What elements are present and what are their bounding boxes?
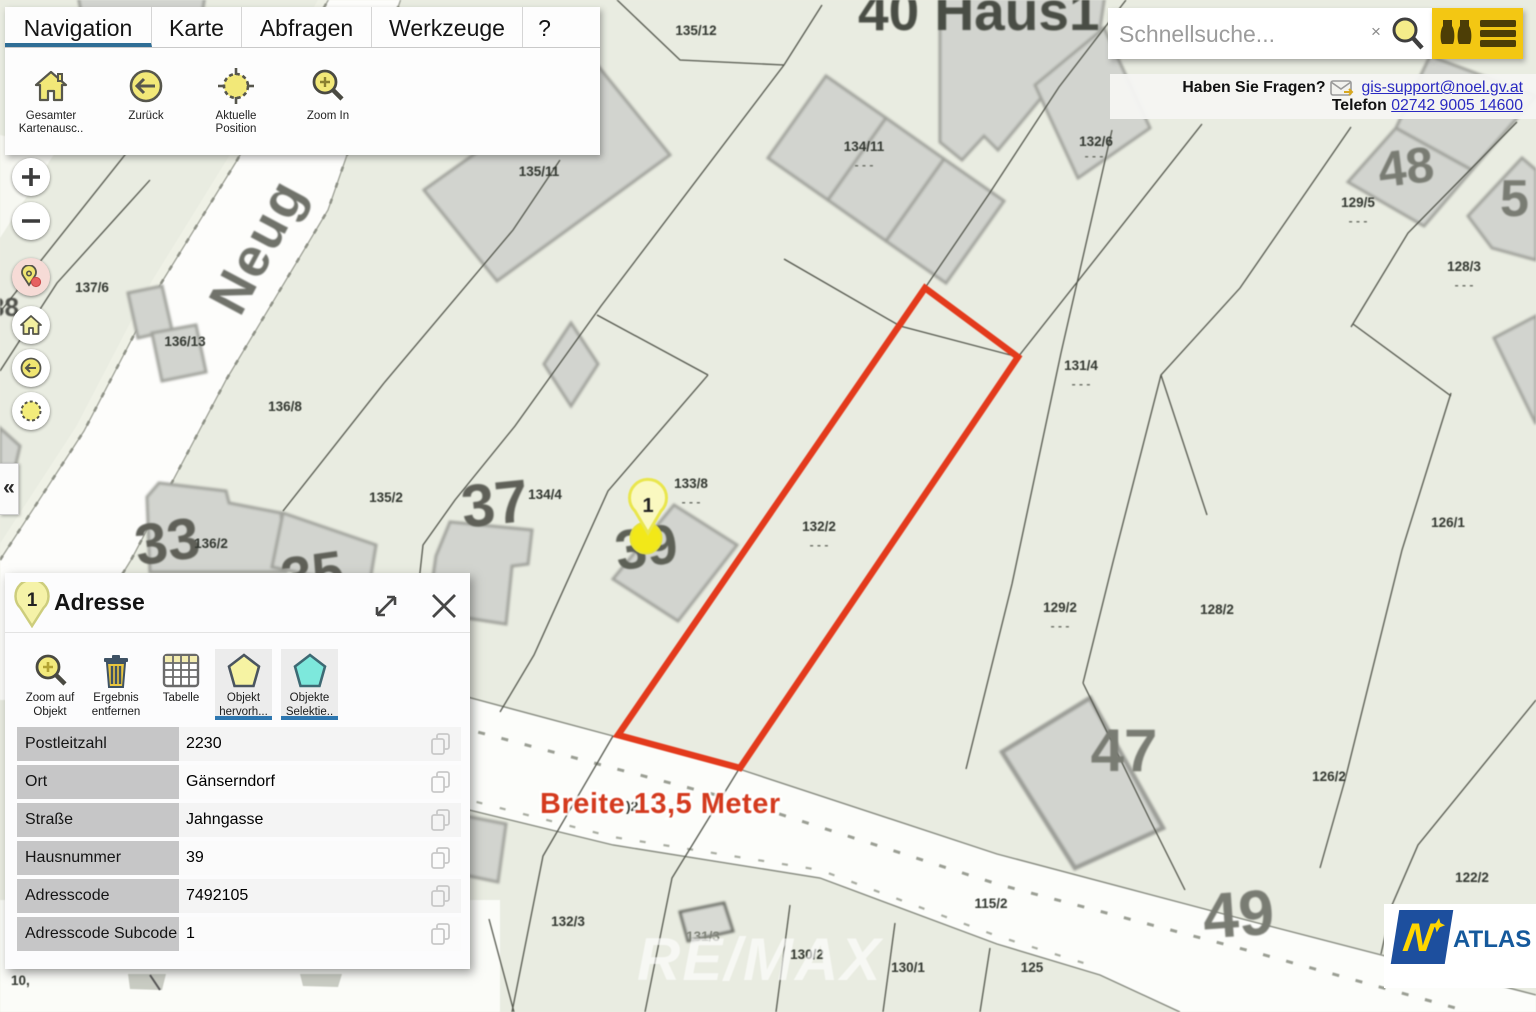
svg-text:134/11: 134/11	[844, 139, 885, 154]
svg-text:- - -: - - -	[855, 158, 874, 172]
svg-text:132/6: 132/6	[1079, 134, 1113, 149]
svg-text:137/6: 137/6	[75, 280, 109, 295]
svg-text:- - -: - - -	[1349, 214, 1368, 228]
svg-text:132/2: 132/2	[802, 519, 836, 534]
svg-text:49: 49	[1200, 876, 1276, 953]
svg-text:136/8: 136/8	[268, 399, 302, 414]
svg-text:128/2: 128/2	[1200, 602, 1234, 617]
svg-text:129/2: 129/2	[1043, 600, 1077, 615]
svg-text:136/13: 136/13	[164, 334, 206, 349]
svg-text:135/12: 135/12	[675, 23, 716, 38]
svg-text:- - -: - - -	[1072, 377, 1091, 391]
svg-text:5: 5	[1500, 170, 1529, 228]
svg-text:Breite 13,5 Meter: Breite 13,5 Meter	[540, 788, 781, 820]
svg-text:N: N	[1400, 915, 1437, 960]
svg-text:131/4: 131/4	[1064, 358, 1098, 373]
svg-text:132/3: 132/3	[551, 914, 585, 929]
svg-text:128/3: 128/3	[1447, 259, 1481, 274]
svg-text:1: 1	[642, 495, 653, 517]
svg-text:134/4: 134/4	[528, 487, 562, 502]
svg-text:- - -: - - -	[810, 538, 829, 552]
svg-text:- - -: - - -	[1455, 278, 1474, 292]
svg-text:- - -: - - -	[1085, 149, 1104, 163]
svg-text:48: 48	[1375, 136, 1437, 198]
svg-text:126/2: 126/2	[1312, 769, 1346, 784]
svg-text:47: 47	[1091, 717, 1158, 784]
svg-text:37: 37	[458, 467, 531, 541]
svg-text:126/1: 126/1	[1431, 515, 1465, 530]
svg-text:- - -: - - -	[1051, 619, 1070, 633]
svg-text:115/2: 115/2	[974, 896, 1007, 911]
svg-text:122/2: 122/2	[1455, 870, 1489, 885]
svg-text:- - -: - - -	[682, 495, 701, 509]
svg-text:33: 33	[131, 505, 204, 578]
svg-text:1: 1	[27, 590, 38, 611]
svg-text:125: 125	[1021, 960, 1044, 975]
svg-text:10,: 10,	[11, 973, 30, 988]
svg-text:136/2: 136/2	[194, 536, 228, 551]
svg-text:129/5: 129/5	[1341, 195, 1375, 210]
svg-text:40 Haus1: 40 Haus1	[858, 0, 1100, 42]
svg-text:135/2: 135/2	[369, 490, 403, 505]
svg-text:130/1: 130/1	[891, 960, 925, 975]
svg-text:RE/MAX: RE/MAX	[637, 926, 884, 993]
svg-text:133/8: 133/8	[674, 476, 708, 491]
svg-text:135/11: 135/11	[519, 164, 560, 179]
